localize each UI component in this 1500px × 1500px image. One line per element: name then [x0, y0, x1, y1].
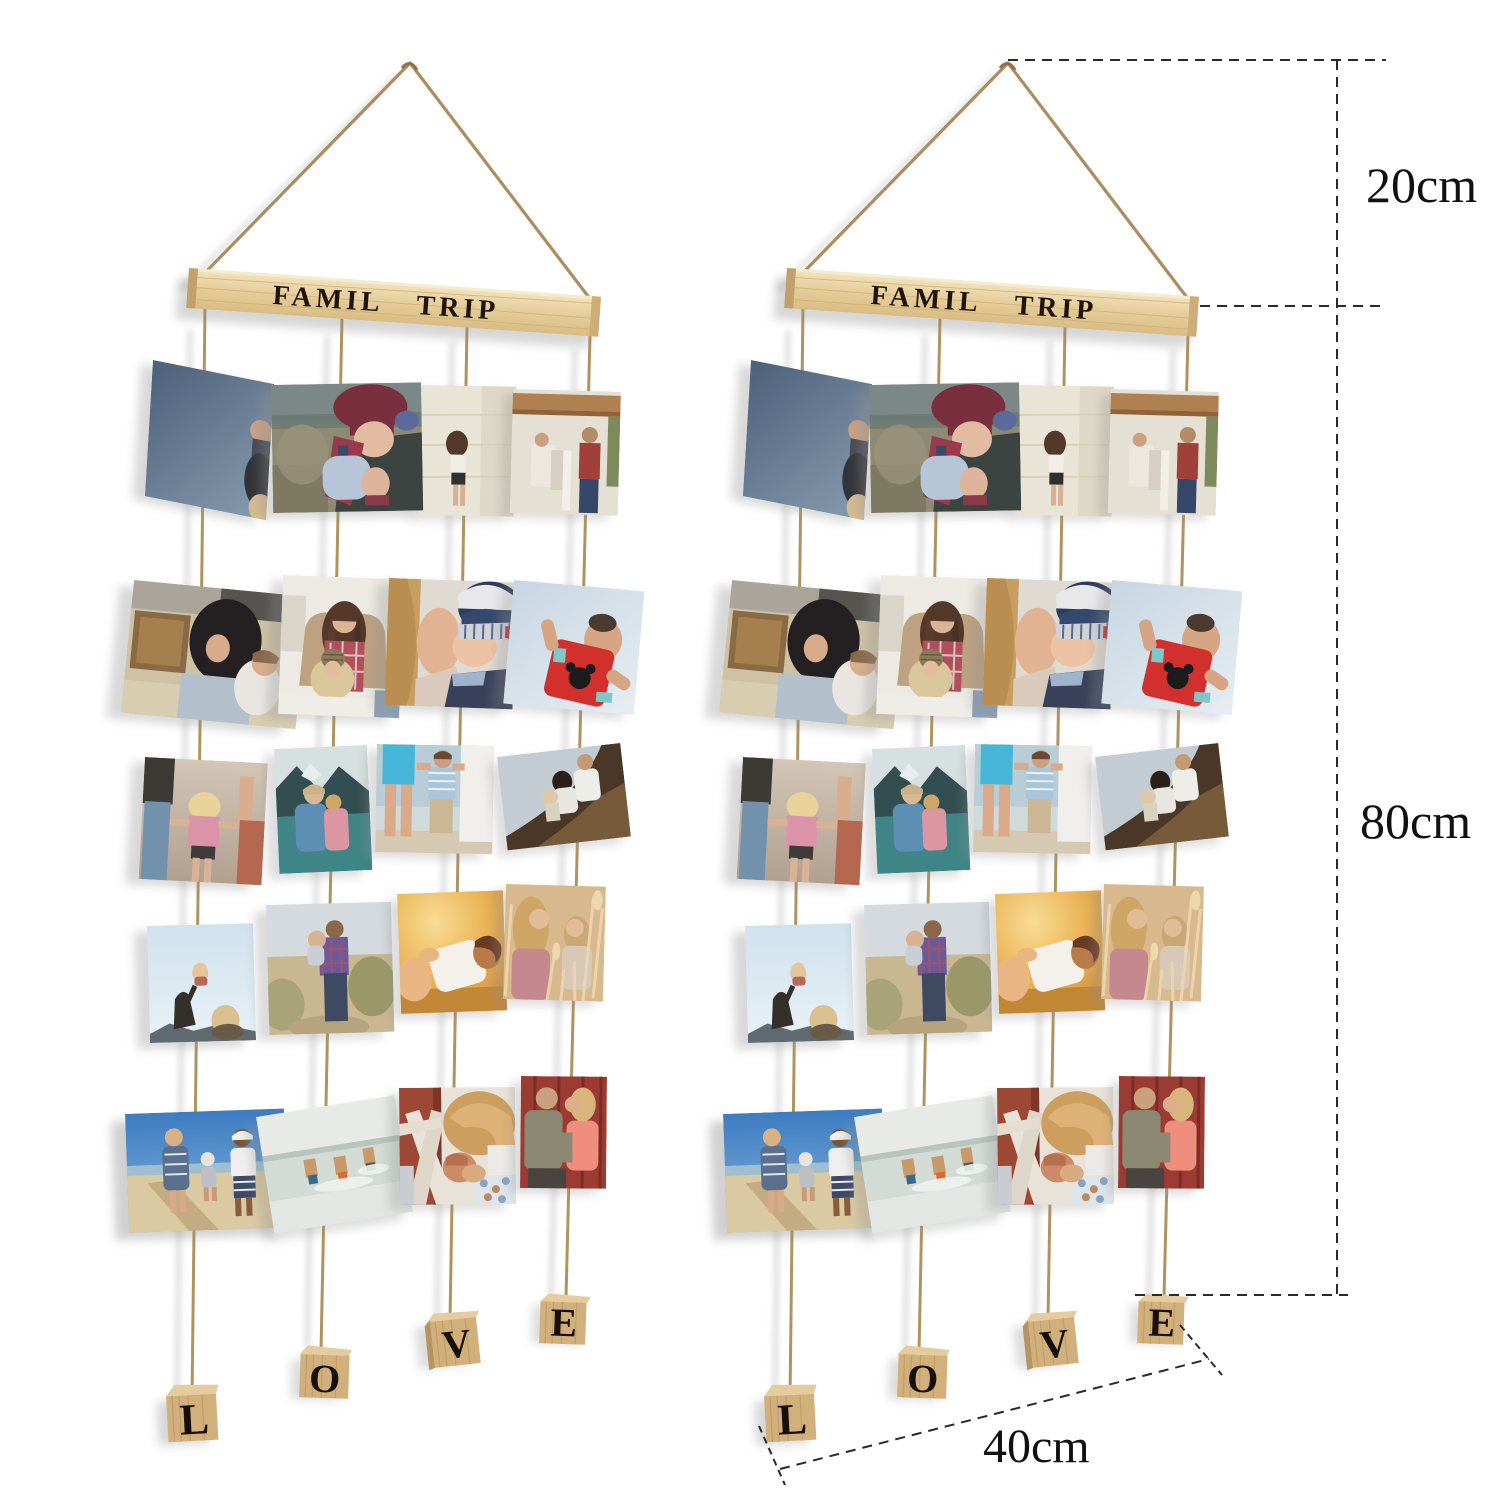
svg-text:20cm: 20cm — [1366, 157, 1477, 213]
svg-text:80cm: 80cm — [1360, 793, 1471, 849]
svg-text:40cm: 40cm — [983, 1420, 1090, 1473]
